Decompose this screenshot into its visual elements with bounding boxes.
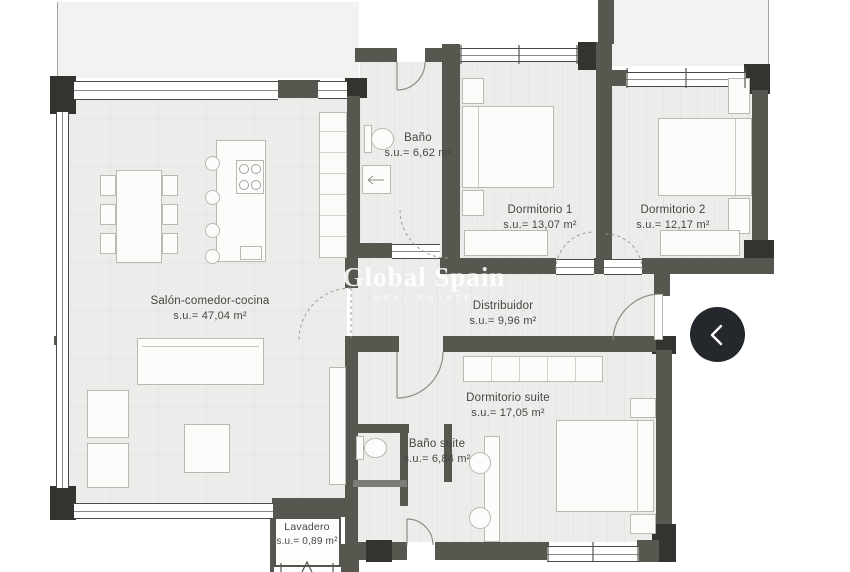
burner-icon [239,180,249,190]
wall-segment [358,243,392,258]
wall-segment [355,48,397,62]
pillar [50,486,76,520]
dining-table [116,170,162,263]
bed [462,106,554,188]
room-label-living: Salón-comedor-cocina s.u.= 47,04 m² [150,294,269,323]
window [547,546,639,562]
toilet [364,438,387,458]
sofa [137,338,264,385]
door-threshold [392,244,440,259]
kitchen-sink [240,246,262,260]
window [74,81,278,100]
bar-stool [205,249,220,264]
kitchen-island [216,140,266,262]
pillow-line [637,421,638,513]
wall-segment [642,258,774,274]
armchair [87,443,129,488]
nightstand [728,78,750,114]
room-area: s.u.= 0,89 m² [276,535,337,548]
wall-segment [656,350,672,532]
window [318,81,347,99]
washbasin [469,507,491,529]
room-name: Salón-comedor-cocina [150,294,269,309]
washbasin [469,452,491,474]
window [460,48,578,62]
bed [556,420,654,512]
room-name: Dormitorio suite [466,391,550,406]
tv-bench [329,367,346,485]
door-threshold [604,259,642,275]
window [74,503,273,519]
room-area: s.u.= 13,07 m² [503,218,576,232]
wall-segment [347,96,360,243]
wardrobe [660,230,740,256]
wall-segment [341,544,359,572]
room-area: s.u.= 17,05 m² [466,406,550,420]
nightstand [728,198,750,234]
shower [362,165,391,194]
pillar [50,76,76,114]
bar-stool [205,223,220,238]
room-name: Baño suite [403,437,470,452]
room-name: Lavadero [276,521,337,535]
wall-segment [752,90,768,248]
wardrobe [464,230,548,256]
bar-stool [205,156,220,171]
terrace [612,0,769,66]
wall-segment [272,498,350,517]
wall-segment [345,336,399,352]
room-label-bathroom: Baño s.u.= 6,62 m² [384,131,451,160]
dining-chair [162,175,178,196]
nightstand [630,514,656,534]
room-label-hall: Distribuidor s.u.= 9,96 m² [469,299,536,328]
room-area: s.u.= 6,62 m² [384,146,451,160]
bed [658,118,752,196]
room-name: Dormitorio 2 [636,203,709,218]
room-name: Distribuidor [469,299,536,314]
wardrobe [463,356,603,382]
room-area: s.u.= 6,84 m² [403,452,470,466]
dining-chair [100,204,116,225]
wall-segment [443,336,656,352]
wall-segment [435,542,549,560]
dining-chair [100,233,116,254]
window [56,112,69,488]
toilet-tank [356,436,364,460]
burner-icon [251,180,261,190]
room-label-bedroom-2: Dormitorio 2 s.u.= 12,17 m² [636,203,709,232]
bar-stool [205,190,220,205]
room-label-laundry: Lavadero s.u.= 0,89 m² [276,521,337,548]
armchair [87,390,129,438]
room-name: Baño [384,131,451,146]
pillar [366,540,392,562]
floor-plan: Salón-comedor-cocina s.u.= 47,04 m² Baño… [0,0,850,572]
room-label-bedroom-1: Dormitorio 1 s.u.= 13,07 m² [503,203,576,232]
entrance-door-leaf [654,294,663,340]
nightstand [462,190,484,216]
half-wall [353,480,407,487]
wall-segment [440,258,556,274]
cooktop [236,160,264,194]
wall-segment [598,0,614,44]
pillow-line [735,119,736,197]
room-label-suite: Dormitorio suite s.u.= 17,05 m² [466,391,550,420]
dining-chair [162,233,178,254]
coffee-table [184,424,230,473]
dining-chair [100,175,116,196]
wall-segment [654,274,670,296]
terrace [57,2,359,78]
wall-segment [637,540,659,562]
room-area: s.u.= 12,17 m² [636,218,709,232]
chevron-left-icon [705,322,731,348]
wall-segment [278,80,320,98]
pillar [345,78,367,98]
nightstand [630,398,656,418]
dining-chair [162,204,178,225]
room-name: Dormitorio 1 [503,203,576,218]
pillow-line [478,107,479,189]
previous-image-button[interactable] [690,307,745,362]
nightstand [462,78,484,104]
door-threshold [556,259,594,275]
room-area: s.u.= 47,04 m² [150,309,269,323]
burner-icon [251,164,261,174]
burner-icon [239,164,249,174]
kitchen-cabinets [319,112,347,258]
room-label-suite-bathroom: Baño suite s.u.= 6,84 m² [403,437,470,466]
room-area: s.u.= 9,96 m² [469,314,536,328]
